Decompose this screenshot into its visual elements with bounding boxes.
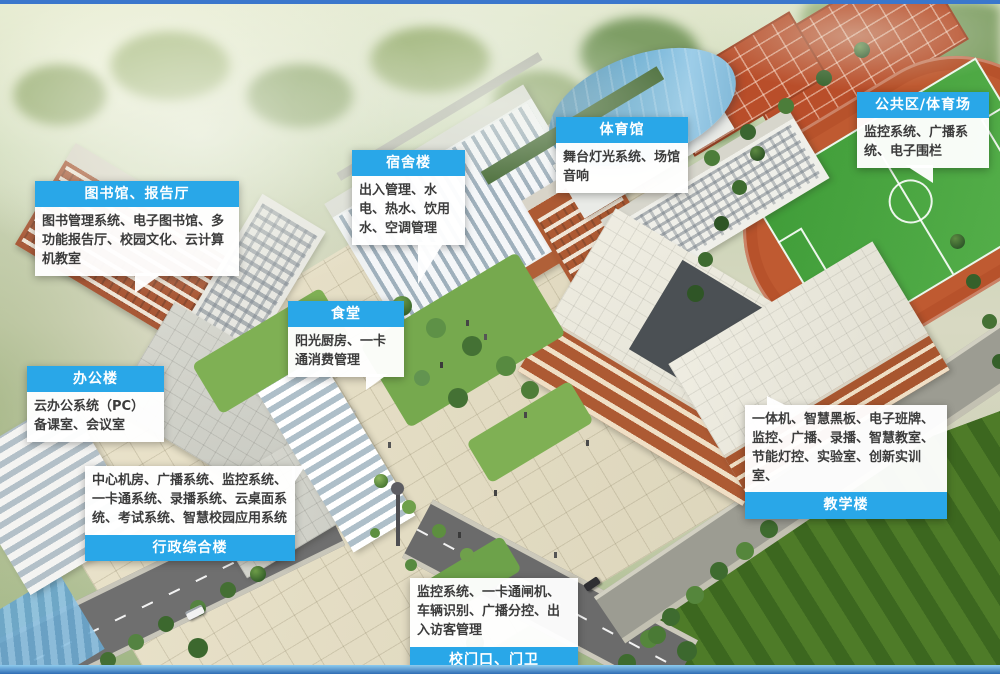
callout-cafeteria-title: 食堂 xyxy=(288,301,404,327)
callout-tail xyxy=(905,165,933,186)
callout-tail xyxy=(366,374,388,393)
callout-cafeteria: 食堂 阳光厨房、一卡通消费管理 xyxy=(288,301,404,377)
callout-teaching-building: 一体机、智慧黑板、电子班牌、监控、广播、录播、智慧教室、节能灯控、实验室、创新实… xyxy=(745,405,947,519)
callout-public-area-body: 监控系统、广播系统、电子围栏 xyxy=(857,118,989,168)
callout-admin-building-body: 中心机房、广播系统、监控系统、一卡通系统、录播系统、云桌面系统、考试系统、智慧校… xyxy=(85,466,295,535)
callout-tail xyxy=(767,393,791,408)
courts-trees xyxy=(854,42,870,58)
callout-teaching-building-body: 一体机、智慧黑板、电子班牌、监控、广播、录播、智慧教室、节能灯控、实验室、创新实… xyxy=(745,405,947,492)
top-blue-line xyxy=(0,0,1000,4)
palm-trees xyxy=(374,474,388,488)
callout-public-area: 公共区/体育场 监控系统、广播系统、电子围栏 xyxy=(857,92,989,168)
callout-gymnasium-title: 体育馆 xyxy=(556,117,688,143)
callout-library-title: 图书馆、报告厅 xyxy=(35,181,239,207)
statue-pole xyxy=(396,490,400,546)
callout-gate-body: 监控系统、一卡通闸机、车辆识别、广播分控、出入访客管理 xyxy=(410,578,578,647)
callout-tail xyxy=(135,273,163,296)
callout-gymnasium-body: 舞台灯光系统、场馆音响 xyxy=(556,143,688,193)
right-edge-trees xyxy=(950,234,965,249)
smart-campus-diagram: 图书馆、报告厅 图书管理系统、电子图书馆、多功能报告厅、校园文化、云计算机教室 … xyxy=(0,0,1000,674)
callout-office: 办公楼 云办公系统（PC）备课室、会议室 xyxy=(27,366,164,442)
callout-gate: 监控系统、一卡通闸机、车辆识别、广播分控、出入访客管理 校门口、门卫 xyxy=(410,578,578,673)
callout-dormitory-title: 宿舍楼 xyxy=(352,150,465,176)
callout-tail xyxy=(418,242,444,287)
callout-public-area-title: 公共区/体育场 xyxy=(857,92,989,118)
callout-teaching-building-title: 教学楼 xyxy=(745,492,947,518)
callout-gymnasium: 体育馆 舞台灯光系统、场馆音响 xyxy=(556,117,688,193)
stadium-trees xyxy=(750,146,765,161)
callout-dormitory: 宿舍楼 出入管理、水电、热水、饮用水、空调管理 xyxy=(352,150,465,245)
statue-top xyxy=(391,482,404,495)
callout-tail xyxy=(292,466,308,486)
callout-office-title: 办公楼 xyxy=(27,366,164,392)
pedestrians xyxy=(466,320,469,326)
bottom-blue-bar xyxy=(0,665,1000,674)
callout-library-body: 图书管理系统、电子图书馆、多功能报告厅、校园文化、云计算机教室 xyxy=(35,207,239,276)
callout-dormitory-body: 出入管理、水电、热水、饮用水、空调管理 xyxy=(352,176,465,245)
callout-admin-building: 中心机房、广播系统、监控系统、一卡通系统、录播系统、云桌面系统、考试系统、智慧校… xyxy=(85,466,295,561)
callout-cafeteria-body: 阳光厨房、一卡通消费管理 xyxy=(288,327,404,377)
callout-office-body: 云办公系统（PC）备课室、会议室 xyxy=(27,392,164,442)
callout-admin-building-title: 行政综合楼 xyxy=(85,535,295,561)
callout-library: 图书馆、报告厅 图书管理系统、电子图书馆、多功能报告厅、校园文化、云计算机教室 xyxy=(35,181,239,276)
west-road-trees xyxy=(250,566,266,582)
